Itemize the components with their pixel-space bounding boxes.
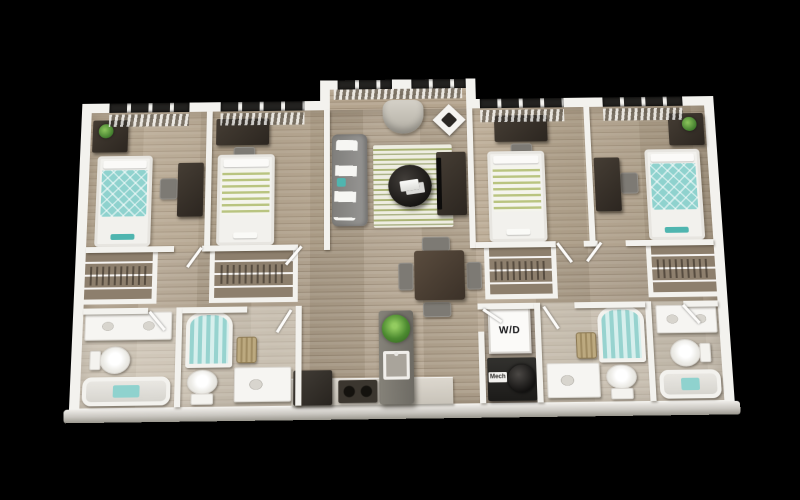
tv-screen (436, 158, 442, 210)
toilet (186, 370, 217, 405)
window-blinds (334, 88, 462, 100)
wall (86, 246, 174, 253)
wall (324, 110, 330, 250)
shower (597, 305, 647, 362)
window-blinds (109, 114, 190, 127)
wall (477, 303, 540, 310)
window (480, 98, 564, 108)
wall (295, 306, 302, 406)
washer-dryer-unit: W/D (488, 307, 532, 354)
striped-quilt (492, 165, 541, 212)
teal-quilt (650, 163, 698, 210)
desk (177, 163, 204, 217)
dining-table (414, 250, 465, 300)
window-blinds (480, 109, 564, 122)
dining-chair (423, 302, 452, 317)
wall (574, 301, 645, 308)
washer-dryer-label: W/D (499, 325, 521, 336)
toilet (606, 364, 638, 399)
bed-pillow (233, 232, 258, 238)
bed-runner (110, 234, 134, 240)
scene: W/D Mech (0, 0, 800, 500)
decor-item (441, 112, 458, 128)
dining-chair (466, 262, 482, 290)
floorplan: W/D Mech (69, 96, 736, 419)
mechanical-label: Mech (488, 372, 507, 383)
window-blinds (220, 112, 304, 125)
bed (644, 149, 705, 240)
mechanical-label-text: Mech (490, 374, 506, 380)
wall (683, 300, 718, 306)
closet-1 (84, 252, 158, 304)
desk-chair (620, 172, 639, 193)
bathtub (81, 376, 170, 406)
wall (625, 239, 713, 246)
dining-chair (398, 263, 413, 291)
bed-pillow (506, 229, 531, 235)
bed (94, 156, 153, 247)
desk (594, 157, 622, 211)
toilet (89, 346, 131, 374)
closet-3 (484, 247, 558, 299)
vanity (234, 367, 292, 403)
bed-runner (665, 227, 689, 233)
bed (487, 151, 548, 242)
closet-2 (209, 250, 298, 303)
toilet (669, 339, 711, 367)
floorplan-screenshot: W/D Mech (0, 0, 800, 500)
closet-4 (646, 245, 717, 297)
wall (182, 306, 247, 313)
kitchen-sink (383, 351, 410, 380)
vanity (546, 363, 601, 399)
wall (83, 308, 148, 315)
window (109, 103, 189, 113)
shower (185, 311, 233, 368)
window-blinds (603, 108, 684, 121)
hamper (576, 332, 598, 359)
window (221, 101, 305, 111)
accent-pillow (337, 178, 346, 187)
stove-cooktop (338, 380, 377, 403)
bathtub (659, 369, 722, 399)
potted-plant (681, 117, 697, 131)
striped-quilt (222, 168, 270, 215)
desk-chair (159, 178, 177, 199)
hamper (236, 337, 257, 364)
teal-quilt (100, 170, 147, 217)
wall (476, 241, 556, 248)
wall (202, 244, 298, 251)
bed (216, 154, 275, 245)
window (602, 96, 682, 106)
